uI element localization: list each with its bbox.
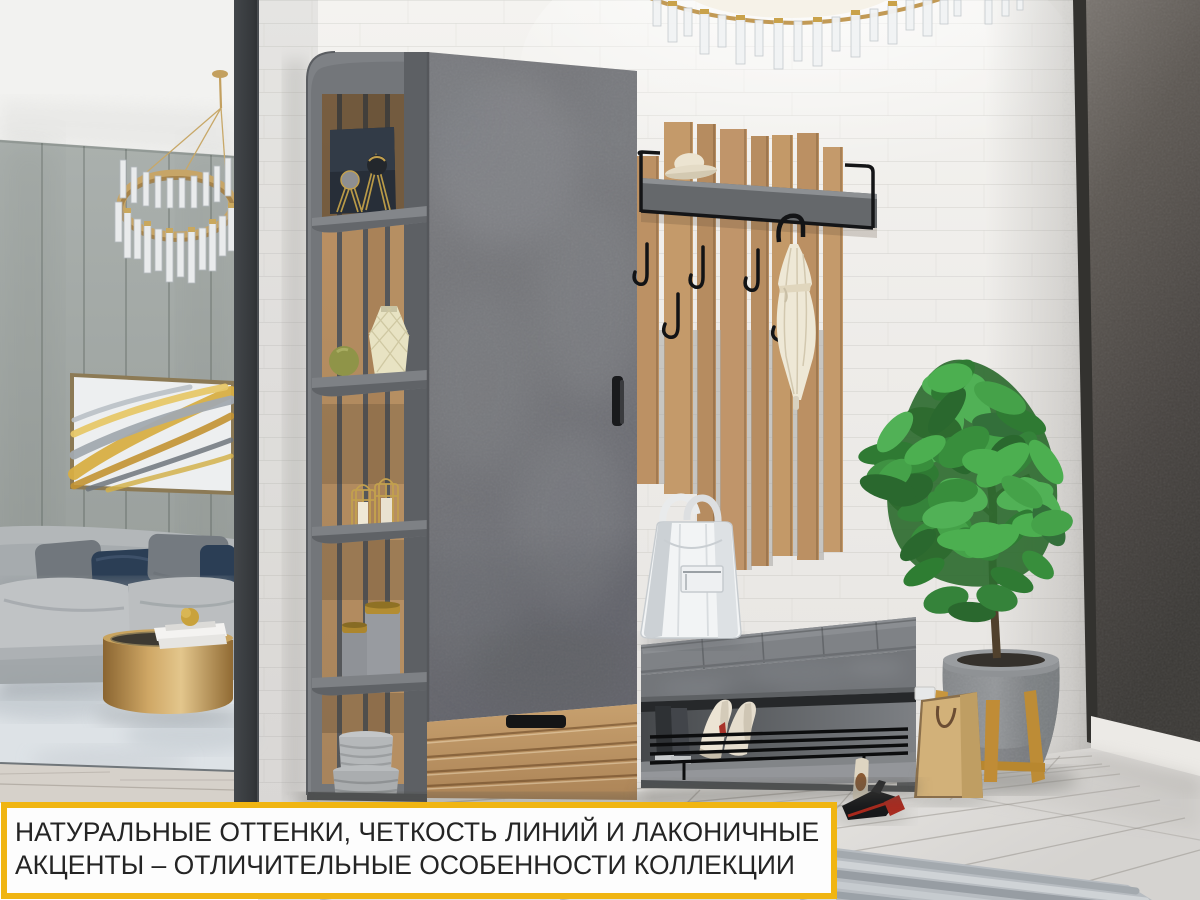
svg-text:АКЦЕНТЫ – ОТЛИЧИТЕЛЬНЫЕ ОСОБЕН: АКЦЕНТЫ – ОТЛИЧИТЕЛЬНЫЕ ОСОБЕННОСТИ КОЛЛ… <box>15 850 795 880</box>
svg-text:НАТУРАЛЬНЫЕ ОТТЕНКИ, ЧЕТКОСТЬ: НАТУРАЛЬНЫЕ ОТТЕНКИ, ЧЕТКОСТЬ ЛИНИЙ И ЛА… <box>15 817 819 847</box>
